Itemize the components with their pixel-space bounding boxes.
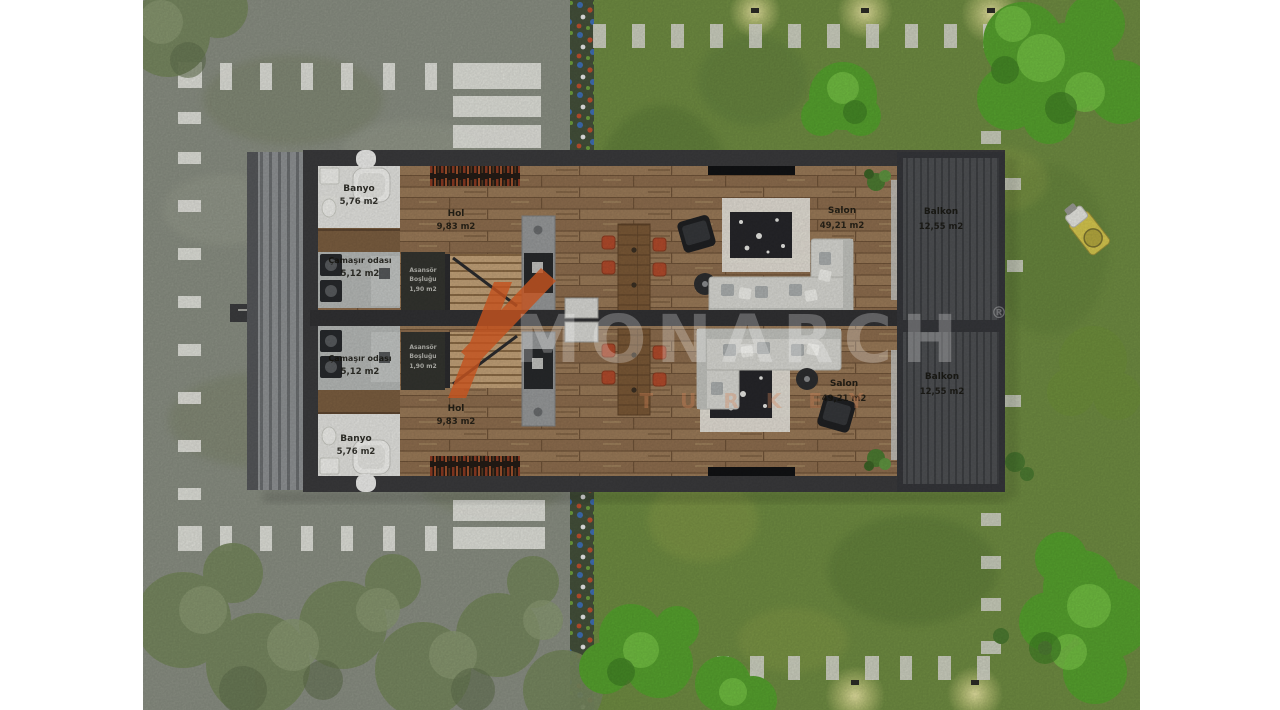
site-plan-svg: Banyo 5,76 m2 Çamaşır odası 5,12 m2 Hol … bbox=[143, 0, 1140, 710]
watermark-country: TURKEY bbox=[640, 389, 891, 413]
watermark-registered-icon: ® bbox=[991, 303, 1007, 322]
page: Banyo 5,76 m2 Çamaşır odası 5,12 m2 Hol … bbox=[0, 0, 1280, 710]
site-plan-rendering: Banyo 5,76 m2 Çamaşır odası 5,12 m2 Hol … bbox=[143, 0, 1140, 710]
watermark-brand: MONARCH bbox=[515, 301, 968, 378]
